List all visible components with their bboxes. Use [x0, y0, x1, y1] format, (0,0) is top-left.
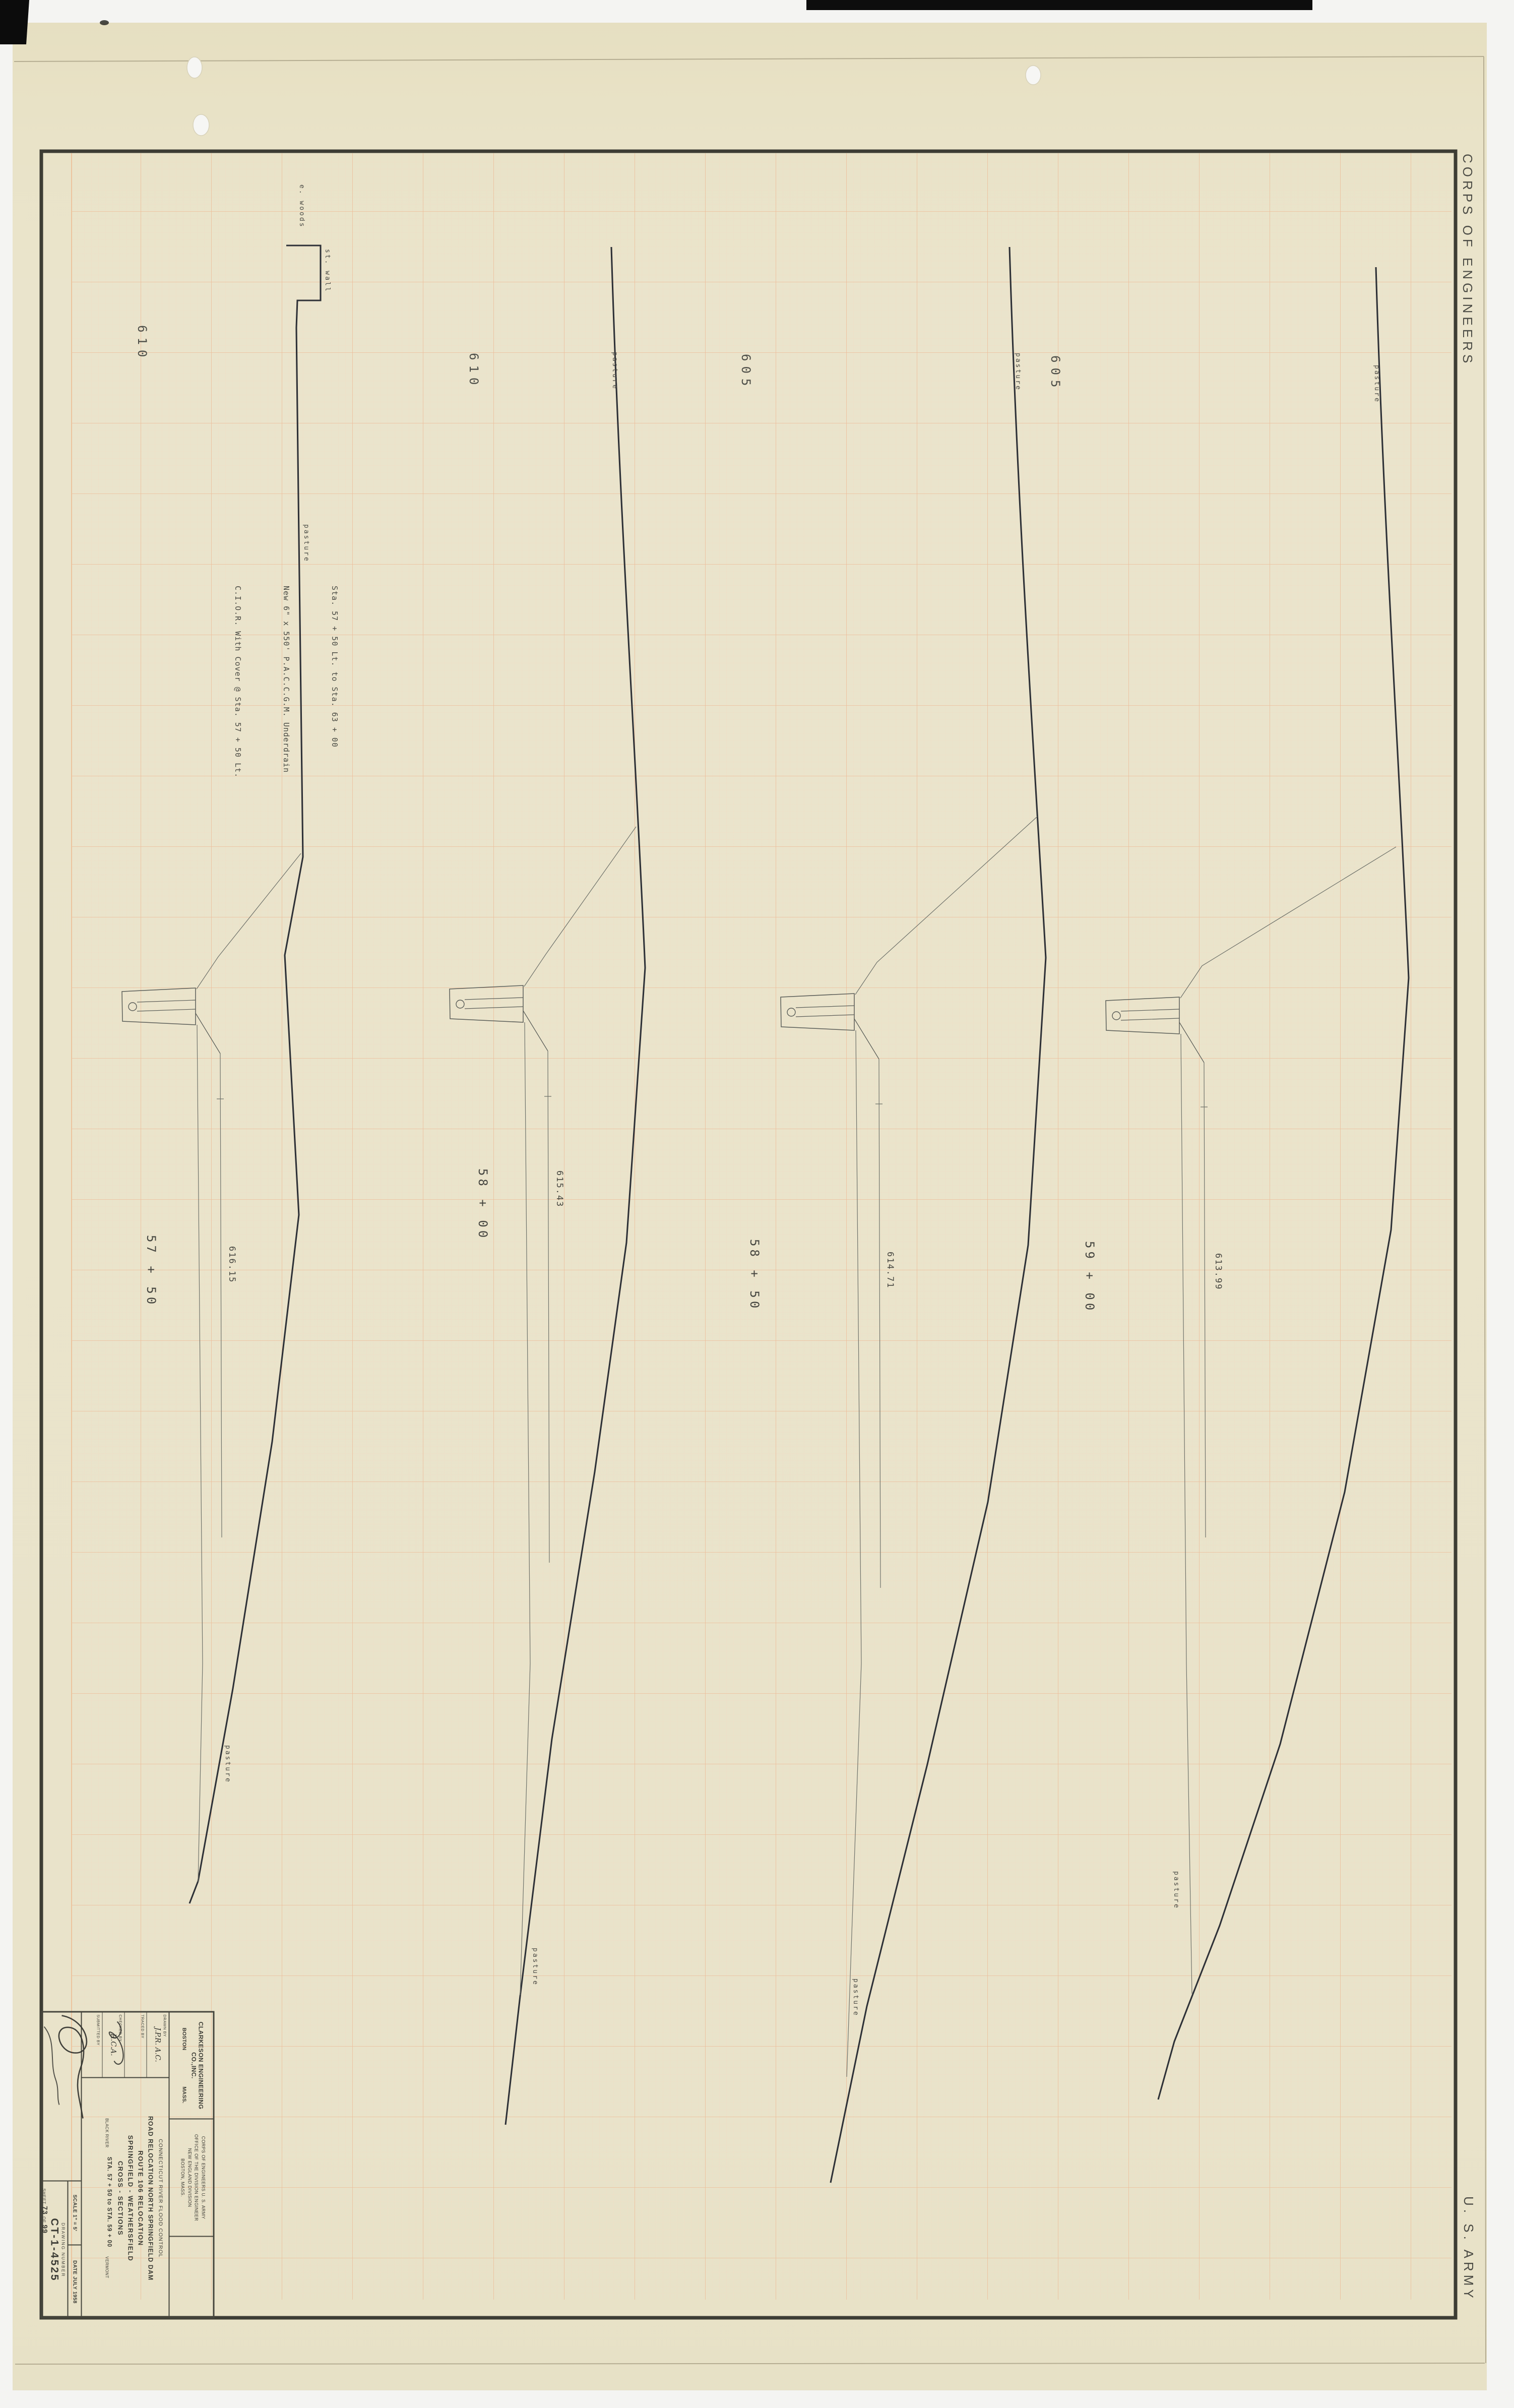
firm-name: CLARKESON ENGINEERING CO.,INC.: [191, 2013, 205, 2119]
project-line-2: ROAD RELOCATION NORTH SPRINGFIELD DAM: [147, 2078, 154, 2319]
drawing-canvas: [0, 0, 1514, 2408]
agency-line: CORPS OF ENGINEERS U. S. ARMY: [200, 2120, 207, 2236]
pasture-label: pasture: [1172, 1871, 1180, 1909]
us-army-margin-label: U. S. ARMY: [1461, 2196, 1476, 2302]
stone-wall-label: st. wall: [324, 249, 331, 293]
note-line-1: Sta. 57 + 50 Lt. to Sta. 63 + 00: [327, 586, 343, 778]
scale-date-row: SCALE 1" = 5' DATE JULY 1958: [69, 2182, 82, 2319]
pasture-label: pasture: [302, 524, 310, 563]
date-cell: DATE JULY 1958: [69, 2246, 81, 2319]
title-block: CLARKESON ENGINEERING CO.,INC. BOSTON MA…: [41, 2011, 215, 2319]
signature-scribble: [27, 2007, 138, 2123]
pasture-label: pasture: [1373, 365, 1380, 403]
drawn-by-value: J.P.R. A.C.: [154, 2013, 162, 2077]
pasture-label: pasture: [852, 1979, 859, 2017]
approval-cell: [169, 2237, 213, 2319]
scanned-drawing-sheet: CORPS OF ENGINEERS U. S. ARMY e. woods s…: [0, 0, 1514, 2408]
scale-cell: SCALE 1" = 5': [69, 2182, 81, 2246]
agency-line: OFFICE OF THE DIVISION ENGINEER: [193, 2120, 200, 2236]
elevation-grid-label: 605: [739, 354, 753, 391]
centerline-elevation-label: 614.71: [885, 1252, 895, 1288]
corps-of-engineers-margin-label: CORPS OF ENGINEERS: [1460, 154, 1475, 366]
project-line-1: CONNECTICUT RIVER FLOOD CONTROL: [158, 2078, 164, 2319]
sheet-of-label: OF: [42, 2216, 46, 2223]
station-label: 57 + 50: [144, 1235, 158, 1307]
firm-cell: CLARKESON ENGINEERING CO.,INC. BOSTON MA…: [169, 2013, 213, 2120]
station-label: 58 + 50: [747, 1239, 762, 1311]
station-label: 59 + 00: [1083, 1241, 1097, 1313]
elevation-grid-label: 610: [467, 353, 481, 390]
river-label: BLACK RIVER: [105, 2118, 109, 2147]
sheet-number: 73: [41, 2206, 49, 2215]
firm-state: MASS.: [181, 2086, 187, 2103]
drawn-by-row: DRAWN BY J.P.R. A.C.: [147, 2013, 169, 2077]
pasture-label: pasture: [224, 1745, 231, 1783]
scan-artifacts: [0, 0, 1312, 44]
centerline-elevation-label: 616.15: [227, 1246, 237, 1283]
note-line-2: New 6" x 550' P.A.C.C.G.M. Underdrain: [278, 586, 294, 778]
pasture-label: pasture: [531, 1948, 539, 1986]
centerline-elevation-label: 615.43: [554, 1170, 564, 1207]
note-line-3: C.I.O.R. With Cover @ Sta. 57 + 50 Lt.: [230, 586, 246, 778]
drawing-number: CT-1-4525: [48, 2182, 60, 2319]
sheet-label: SHEET: [42, 2189, 46, 2205]
station-label: 58 + 00: [476, 1168, 490, 1241]
traced-by-label: TRACED BY: [141, 2015, 145, 2039]
state-label: VERMONT: [105, 2256, 109, 2278]
title-line-1: ROUTE 106 RELOCATION: [137, 2078, 145, 2319]
station-range: STA. 57 + 50 to STA. 59 + 00: [106, 2157, 112, 2248]
centerline-elevation-label: 613.99: [1213, 1253, 1223, 1290]
agency-cell: CORPS OF ENGINEERS U. S. ARMY OFFICE OF …: [169, 2120, 213, 2237]
agency-line: BOSTON, MASS.: [179, 2120, 186, 2236]
elevation-grid-label: 605: [1048, 355, 1062, 392]
woods-label: e. woods: [298, 184, 305, 228]
pasture-label: pasture: [611, 352, 618, 390]
punch-holes: [187, 57, 1041, 136]
agency-line: NEW ENGLAND DIVISION: [186, 2120, 193, 2236]
drawn-by-label: DRAWN BY: [163, 2015, 167, 2037]
sheet-info: SHEET 73 OF 99: [41, 2189, 49, 2234]
underdrain-note: Sta. 57 + 50 Lt. to Sta. 63 + 00 New 6" …: [198, 586, 375, 778]
drawing-number-label: DRAWING NUMBER: [61, 2182, 68, 2319]
elevation-grid-label: 610: [135, 325, 149, 362]
graph-grid: [72, 153, 1452, 2300]
firm-city: BOSTON: [181, 2028, 187, 2051]
drawing-number-cell: DRAWING NUMBER CT-1-4525 SHEET 73 OF 99: [41, 2182, 69, 2319]
sheet-total: 99: [41, 2225, 49, 2234]
pasture-label: pasture: [1014, 353, 1022, 391]
